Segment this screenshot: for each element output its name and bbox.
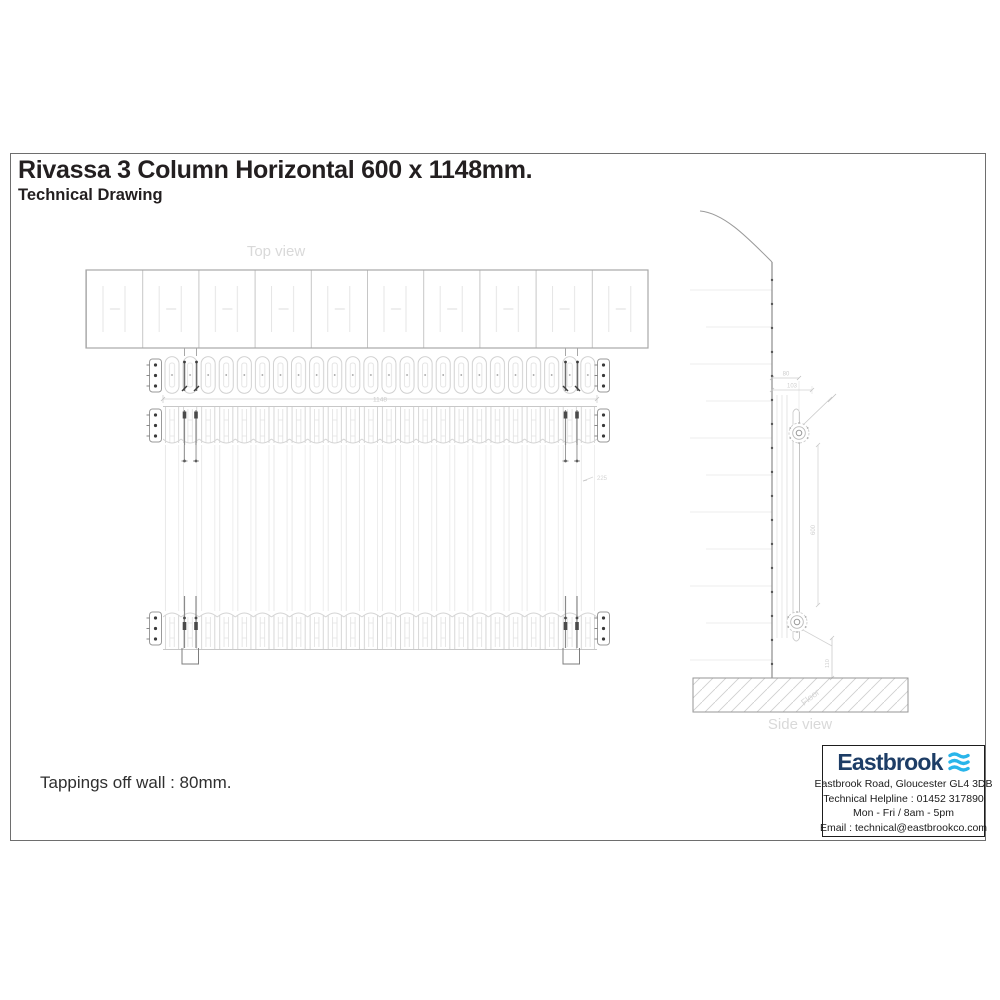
radiator-drawing: Top view — [0, 0, 1000, 1000]
tapping-bottom — [787, 611, 807, 633]
side-view-wall-lines — [690, 290, 772, 660]
top-view-wall-section — [86, 270, 648, 348]
width-dimension: 1148 — [161, 395, 599, 404]
height-dimension: 600 — [811, 443, 820, 607]
off-wall-dimension: 80 103 — [770, 372, 836, 426]
company-address: Eastbrook Road, Gloucester GL4 3DB — [815, 777, 993, 792]
height-value: 600 — [811, 524, 817, 535]
tapping-leader — [803, 397, 832, 425]
tapping-top — [789, 422, 809, 444]
company-helpline: Technical Helpline : 01452 317890 — [815, 792, 993, 807]
company-hours: Mon - Fri / 8am - 5pm — [815, 806, 993, 821]
tappings-note: Tappings off wall : 80mm. — [40, 773, 232, 793]
side-view: 80 103 600 110 Floor — [690, 211, 908, 733]
front-view-columns — [163, 445, 597, 611]
floor-clearance-dimension: 110 — [803, 630, 834, 680]
eastbrook-waves-icon — [948, 751, 970, 773]
width-dimension-value: 1148 — [373, 397, 387, 404]
top-view-columns — [163, 356, 597, 394]
floor-clearance-value: 110 — [825, 659, 831, 668]
top-view-endcap-left — [147, 359, 162, 392]
top-view-hangers — [185, 348, 578, 356]
top-view-label: Top view — [247, 243, 306, 260]
side-view-label: Side view — [768, 716, 832, 733]
floor-section — [693, 678, 908, 712]
front-view-endcap-bottom-left — [147, 612, 162, 645]
front-view: 225 — [147, 406, 610, 664]
company-logo: Eastbrook — [837, 749, 969, 775]
wall-break-curve — [700, 211, 772, 262]
depth-value: 103 — [787, 384, 798, 390]
off-wall-value: 80 — [783, 372, 790, 378]
top-view: Top view — [86, 243, 648, 404]
company-logo-text: Eastbrook — [837, 749, 942, 776]
company-info-box: Eastbrook Eastbrook Road, Gloucester GL4… — [822, 745, 985, 837]
front-view-endcap-top-left — [147, 409, 162, 442]
company-email: Email : technical@eastbrookco.com — [815, 821, 993, 836]
front-view-top-header — [163, 406, 597, 445]
side-note-value: 225 — [597, 476, 608, 482]
front-view-bottom-header — [163, 611, 597, 650]
technical-drawing-page: Rivassa 3 Column Horizontal 600 x 1148mm… — [0, 0, 1000, 1000]
